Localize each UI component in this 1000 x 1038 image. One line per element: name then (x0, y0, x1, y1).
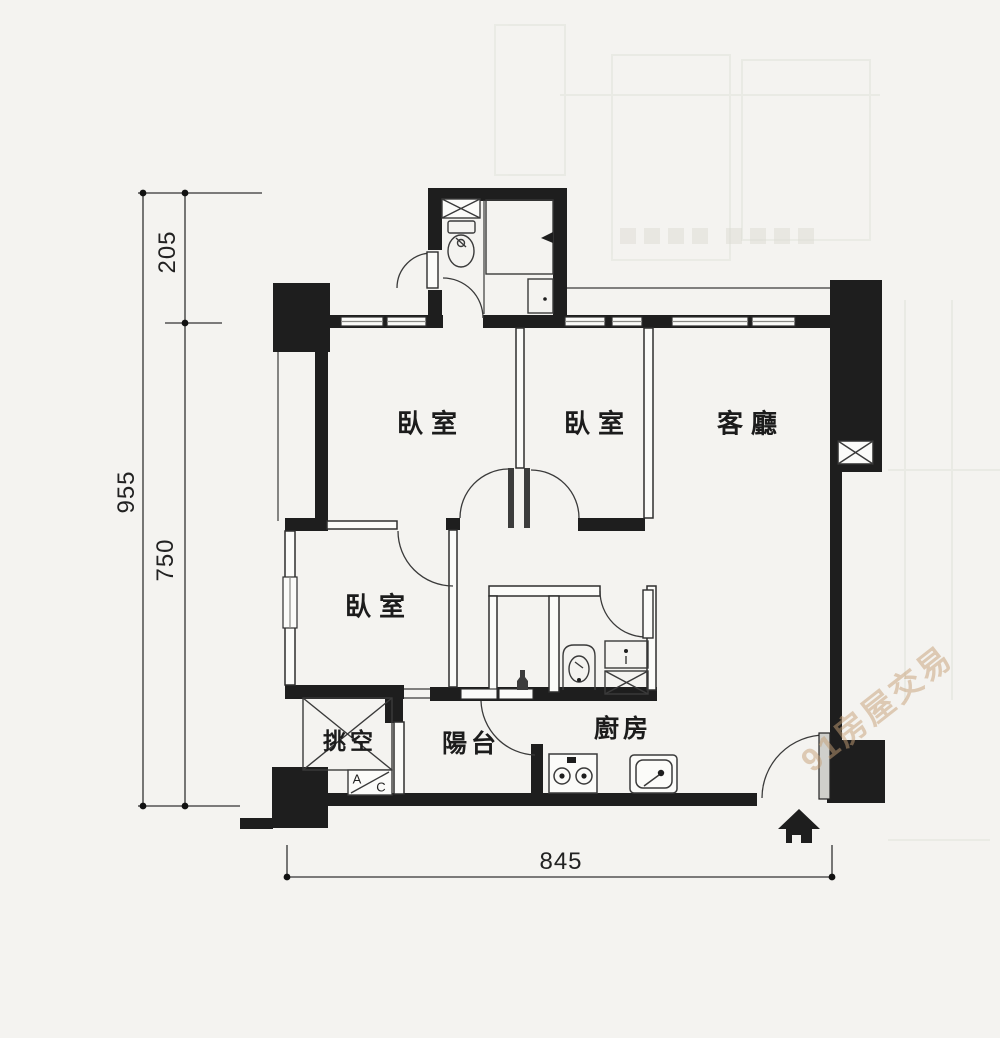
wall-balcony-left (394, 722, 404, 794)
window (341, 317, 383, 326)
wall-bedroom2-living (644, 328, 653, 518)
entry-door-arc (762, 735, 825, 798)
bedroom1-door-arc (460, 469, 508, 518)
toilet-icon (563, 645, 595, 690)
bedroom2-door-arc (531, 470, 579, 518)
wall-bedroom2-south (578, 518, 645, 531)
window-bedroom3-left (283, 577, 297, 628)
wall-bedroom3-bottom (285, 685, 404, 699)
wall-bathroom2-left (549, 596, 559, 692)
entry-door-leaf (819, 733, 830, 799)
ac-letter-c: C (376, 780, 385, 795)
wall-foot-bottom-left (240, 818, 273, 829)
label-void: 挑空 (319, 722, 377, 756)
vanity-counter-icon (442, 199, 480, 218)
label-kitchen: 廚房 (590, 709, 652, 745)
window (387, 317, 426, 326)
wall-passage-duct (489, 596, 497, 690)
bathroom2-door-arc (600, 591, 646, 637)
entry-opening (757, 792, 820, 807)
wall-corridor-south (489, 586, 600, 596)
water-heater-icon (517, 670, 528, 690)
bathroom2-fixtures (517, 641, 648, 694)
entry-arrow-icon (778, 809, 820, 843)
stove-icon (549, 754, 597, 793)
wall-column-top-left (273, 283, 330, 352)
label-balcony: 陽台 (438, 724, 500, 760)
balcony-slider-panel (461, 689, 497, 699)
window (752, 317, 795, 326)
balcony-slider-panel (499, 689, 533, 699)
toilet-icon (448, 221, 475, 267)
bathroom1-door-opening (443, 314, 483, 329)
wall-column-bottom-right (827, 740, 885, 803)
shower-door-mark (541, 232, 553, 243)
wall-balcony-kitchen-divider (531, 744, 543, 794)
bedroom1-door-leaf (508, 468, 514, 528)
window (565, 317, 605, 326)
floorplan-page: 臥室 臥室 客廳 臥室 挑空 陽台 廚房 205 955 750 845 A C… (0, 0, 1000, 1038)
wall-bedroom3-top (327, 521, 397, 529)
window (612, 317, 642, 326)
bedroom2-door-leaf (524, 468, 530, 528)
wall-bedroom3-top-left (285, 518, 328, 531)
bathroom1-fixtures (442, 199, 553, 313)
wall-bedroom1-2-divider (516, 328, 524, 468)
wall-stub-void-right (385, 699, 403, 723)
windows-top (341, 317, 795, 326)
bedroom3-door-arc (398, 531, 453, 586)
label-living-room: 客廳 (709, 404, 785, 441)
dim-label-955: 955 (113, 470, 141, 513)
label-bedroom-left: 臥室 (337, 587, 413, 624)
bathroom2-door-leaf (643, 590, 653, 638)
dim-label-750: 750 (152, 538, 180, 581)
dim-label-205: 205 (154, 230, 182, 273)
floorplan-drawing (0, 0, 1000, 1038)
washbasin-cabinet-icon (605, 641, 648, 668)
sink-icon (630, 755, 677, 793)
bathroom1-cabinet (528, 279, 553, 313)
label-bedroom-top-left: 臥室 (389, 404, 465, 441)
window (672, 317, 748, 326)
dim-label-845: 845 (539, 848, 582, 876)
wall-bedroom3-right (449, 530, 457, 687)
shaft-x-box (838, 441, 873, 464)
wall-bathroom1-right (553, 188, 567, 322)
bathroom1-side-door-leaf (427, 252, 438, 288)
wall-bedroom1-left (315, 352, 328, 519)
kitchen-fixtures (549, 754, 677, 793)
wall-column-bottom-left (272, 767, 328, 828)
wall-bit-between-doors (446, 518, 460, 530)
bathroom1-door-arc (443, 278, 483, 318)
shower-stall (486, 200, 553, 274)
dimension-lines (138, 190, 835, 881)
label-bedroom-top-mid: 臥室 (556, 404, 632, 441)
ac-letter-a: A (353, 772, 362, 787)
wall-right-narrow (830, 470, 842, 742)
